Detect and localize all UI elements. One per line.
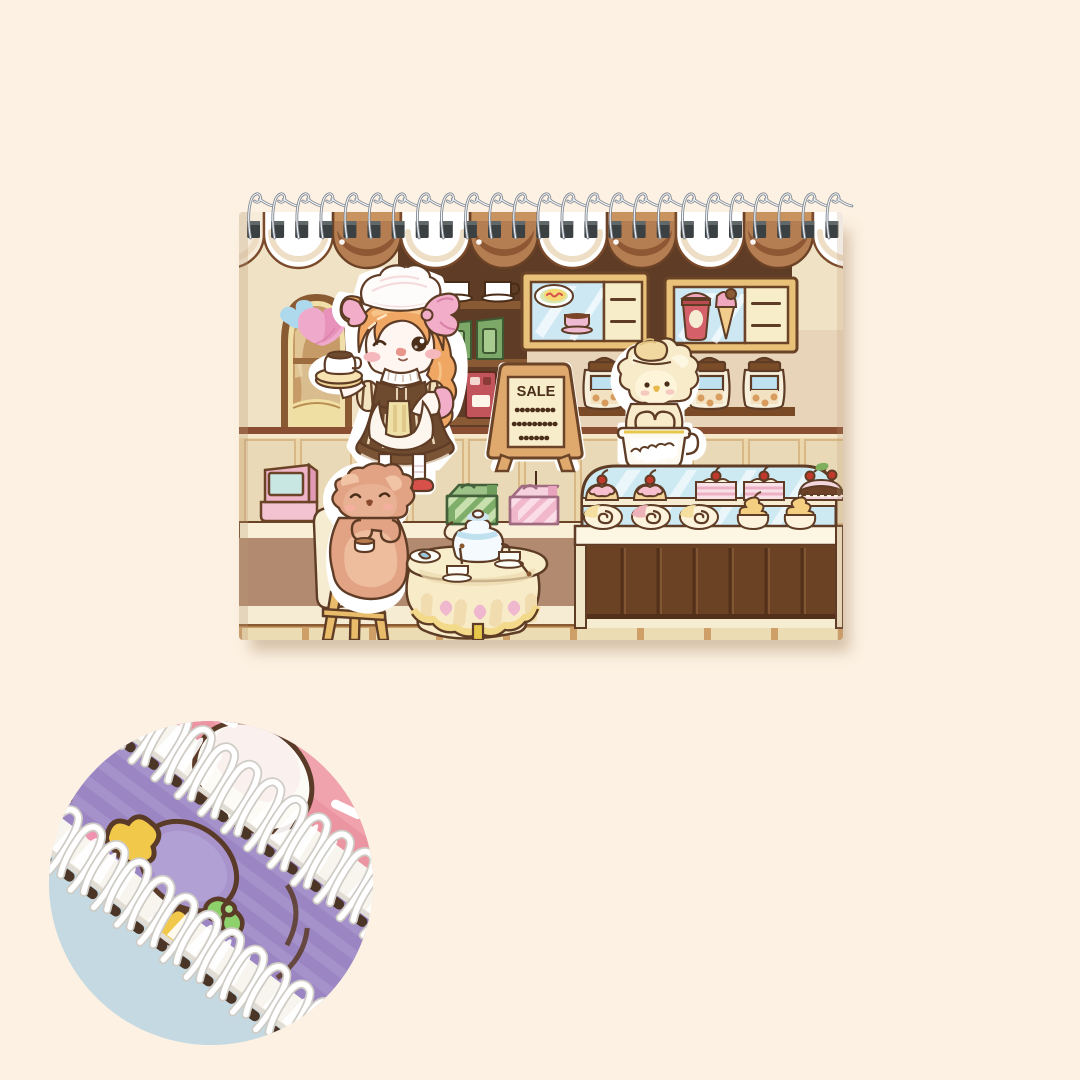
svg-text:SALE: SALE <box>517 384 556 400</box>
